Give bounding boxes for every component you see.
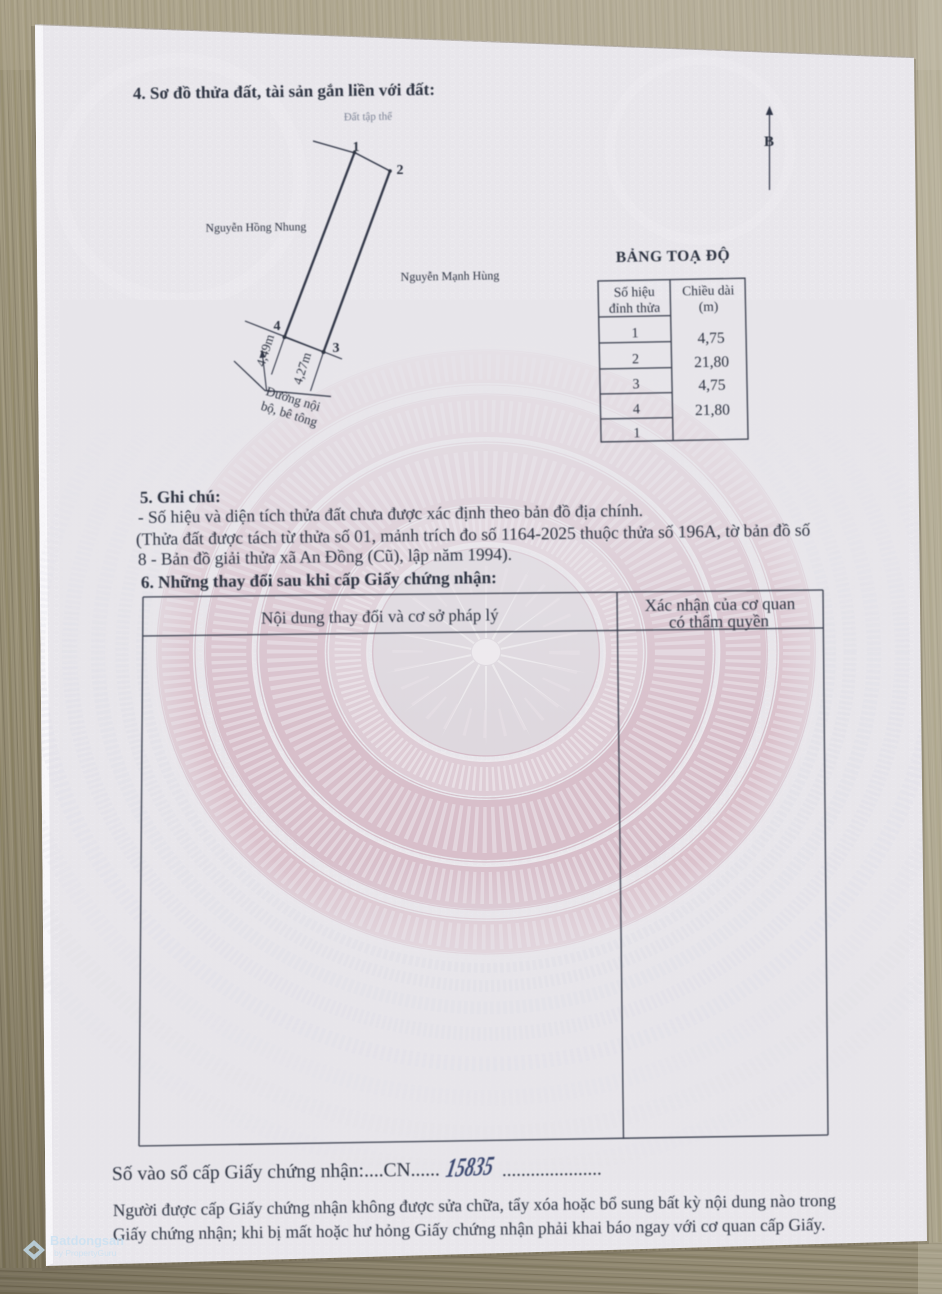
svg-text:21,80: 21,80 bbox=[695, 401, 730, 419]
svg-text:by PropertyGuru: by PropertyGuru bbox=[54, 1248, 117, 1258]
svg-text:3: 3 bbox=[333, 341, 340, 356]
svg-text:đỉnh thửa: đỉnh thửa bbox=[609, 300, 660, 316]
svg-text:4: 4 bbox=[633, 402, 640, 417]
svg-text:Số hiệu: Số hiệu bbox=[614, 284, 655, 300]
svg-text:4,75: 4,75 bbox=[697, 330, 725, 348]
svg-text:5. Ghi chú:: 5. Ghi chú: bbox=[140, 487, 221, 507]
svg-text:1: 1 bbox=[633, 426, 640, 441]
svg-text:2: 2 bbox=[397, 163, 404, 178]
svg-text:2: 2 bbox=[632, 352, 639, 367]
svg-text:Batdongsan: Batdongsan bbox=[50, 1233, 124, 1248]
svg-text:Nguyễn Mạnh Hùng: Nguyễn Mạnh Hùng bbox=[401, 268, 500, 283]
svg-text:Nguyễn Hồng Nhung: Nguyễn Hồng Nhung bbox=[206, 220, 307, 234]
svg-text:3: 3 bbox=[632, 377, 639, 392]
svg-text:1: 1 bbox=[353, 140, 360, 155]
svg-text:B: B bbox=[764, 134, 774, 150]
svg-text:21,80: 21,80 bbox=[694, 353, 729, 371]
svg-text:Đất tập thể: Đất tập thể bbox=[344, 111, 393, 124]
svg-text:BẢNG TOẠ ĐỘ: BẢNG TOẠ ĐỘ bbox=[616, 247, 731, 266]
svg-text:15835: 15835 bbox=[444, 1152, 497, 1184]
svg-text:(m): (m) bbox=[699, 299, 719, 314]
svg-text:.....................: ..................... bbox=[502, 1159, 602, 1181]
svg-text:Nội dung thay đổi và cơ sở phá: Nội dung thay đổi và cơ sở pháp lý bbox=[261, 605, 499, 627]
svg-text:4: 4 bbox=[274, 319, 281, 334]
svg-text:4,75: 4,75 bbox=[698, 377, 726, 395]
svg-text:có thẩm quyền: có thẩm quyền bbox=[669, 611, 770, 631]
svg-text:1: 1 bbox=[631, 326, 638, 341]
svg-text:Chiều dài: Chiều dài bbox=[682, 282, 735, 298]
